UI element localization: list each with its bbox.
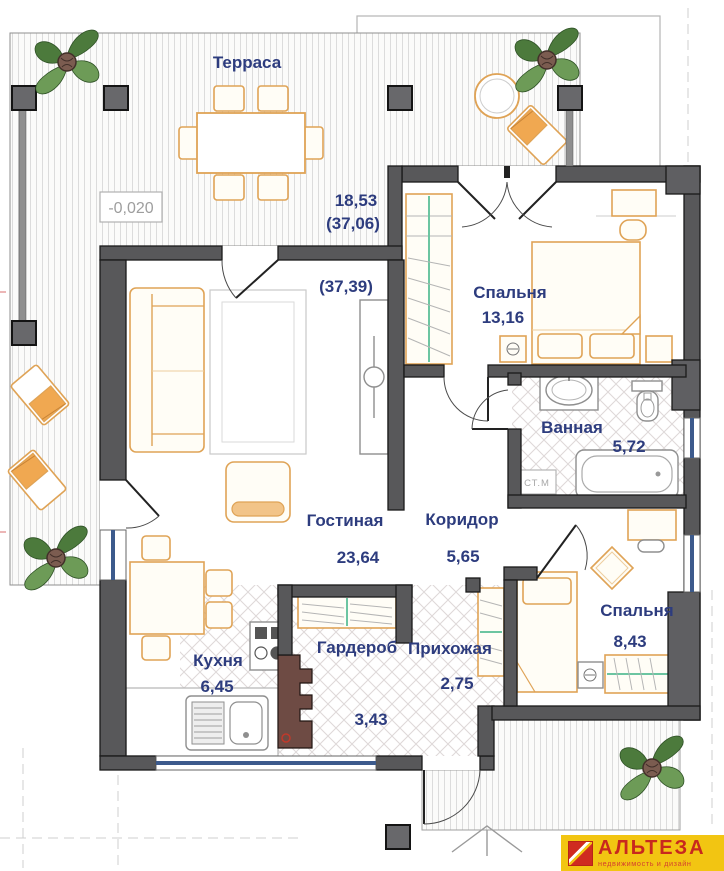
wardrobe-room-closet	[298, 596, 396, 628]
agency-logo[interactable]: АЛЬТЕЗА недвижимость и дизайн	[561, 835, 724, 871]
wardrobe-main-bedroom	[406, 194, 452, 364]
round-table	[475, 74, 519, 118]
label-living: Гостиная	[307, 511, 384, 530]
label-entry-hall: Прихожая	[408, 639, 492, 658]
hall-closet	[478, 588, 504, 676]
floor-plan-page: СТ.М	[0, 0, 724, 871]
label-vestibule-area: 3,43	[354, 710, 387, 729]
label-bathroom: Ванная	[541, 418, 603, 437]
label-kitchen-area: 6,45	[200, 677, 233, 696]
agency-logo-tagline: недвижимость и дизайн	[598, 860, 706, 867]
window-small-bedroom	[684, 535, 700, 592]
label-bathroom-area: 5,72	[612, 437, 645, 456]
chimney	[278, 655, 312, 748]
label-terrace-area: 18,53	[335, 191, 378, 210]
nightstand-right	[646, 336, 672, 362]
elevation-value: -0,020	[108, 200, 153, 217]
bedside-cabinet	[578, 662, 603, 688]
nightstand-left	[500, 336, 526, 362]
floor-plan-drawing: СТ.М	[0, 0, 724, 871]
single-bed	[517, 572, 577, 692]
label-corridor-area: 5,65	[446, 547, 479, 566]
label-terrace: Терраса	[213, 53, 282, 72]
label-entry-hall-area: 2,75	[440, 674, 473, 693]
tv-stand	[360, 300, 388, 454]
wardrobe-small-bedroom	[605, 655, 677, 693]
label-main-bedroom: Спальня	[473, 283, 546, 302]
double-bed	[532, 242, 640, 364]
label-terrace-area-total: (37,06)	[326, 214, 380, 233]
label-terrace-area-total2: (37,39)	[319, 277, 373, 296]
armchair	[226, 462, 290, 522]
window-left	[100, 530, 126, 580]
label-living-area: 23,64	[337, 548, 380, 567]
label-small-bedroom-area: 8,43	[613, 632, 646, 651]
washing-machine: СТ.М	[518, 470, 556, 494]
label-main-bedroom-area: 13,16	[482, 308, 525, 327]
label-wardrobe: Гардероб	[317, 638, 397, 657]
kitchen-sink	[186, 696, 268, 750]
label-small-bedroom: Спальня	[600, 601, 673, 620]
sofa	[130, 288, 204, 452]
agency-logo-icon	[568, 841, 593, 866]
washing-machine-label: СТ.М	[524, 478, 550, 489]
elevation-mark: -0,020	[100, 192, 162, 222]
label-corridor: Коридор	[425, 510, 498, 529]
window-kitchen	[156, 756, 376, 770]
agency-logo-brand: АЛЬТЕЗА	[598, 838, 706, 858]
window-bathroom	[684, 418, 700, 458]
label-kitchen: Кухня	[193, 651, 243, 670]
bathtub	[576, 450, 678, 498]
